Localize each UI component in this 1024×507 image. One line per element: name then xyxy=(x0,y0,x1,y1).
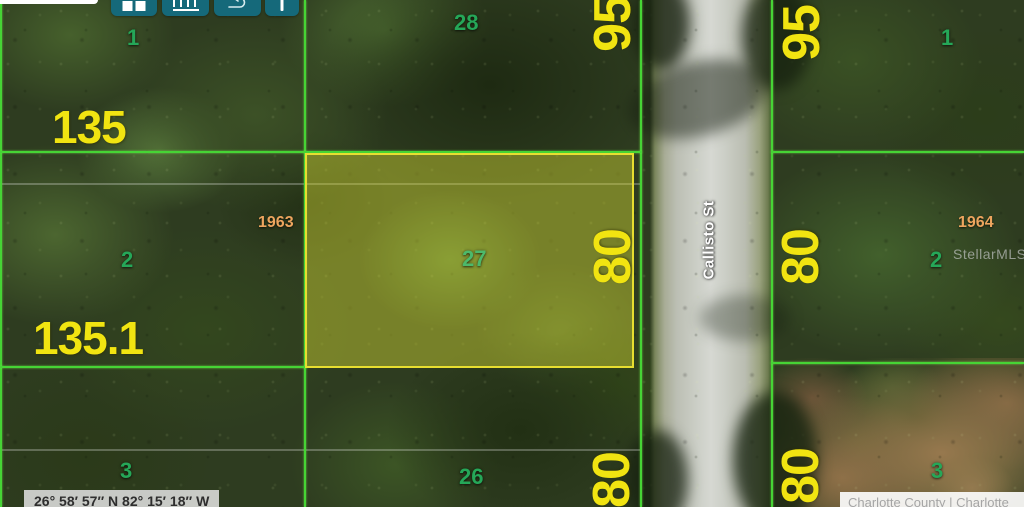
lot-number: 3 xyxy=(931,460,943,482)
faint-section-line xyxy=(0,449,641,451)
lot-dimension: 135.1 xyxy=(33,315,143,361)
parcel-line-west xyxy=(0,0,2,507)
map-attribution: Charlotte County | Charlotte xyxy=(840,492,1024,507)
lot-number: 26 xyxy=(459,466,483,488)
stellar-mls-watermark: StellarMLS xyxy=(953,246,1024,262)
measure-button[interactable] xyxy=(162,0,209,16)
parcel-line-row2-right xyxy=(771,362,1024,364)
parcel-id: 1964 xyxy=(958,215,994,231)
street-label: Callisto St xyxy=(701,201,718,280)
lot-number: 1 xyxy=(127,27,139,49)
lot-dimension: 95 xyxy=(587,0,639,52)
lot-number: 1 xyxy=(941,27,953,49)
layers-button[interactable] xyxy=(111,0,157,16)
parcel-line-row2-left xyxy=(0,366,307,368)
marker-button[interactable] xyxy=(265,0,299,16)
tree-shadow xyxy=(700,295,790,341)
draw-arrow-icon xyxy=(226,0,250,14)
lot-dimension: 80 xyxy=(586,452,638,507)
gps-coordinates: 26° 58′ 57″ N 82° 15′ 18″ W xyxy=(24,490,219,507)
lot-dimension: 80 xyxy=(775,229,827,285)
grid-icon xyxy=(123,0,146,11)
parcel-line-row1-right xyxy=(771,151,1024,153)
ruler-icon xyxy=(173,0,199,11)
lot-number: 2 xyxy=(930,249,942,271)
parcel-id: 1963 xyxy=(258,215,294,231)
lot-number: 2 xyxy=(121,249,133,271)
lot-number: 28 xyxy=(454,12,478,34)
map-viewer: 1 2 3 28 27 26 1 2 3 135 135.1 95 80 80 … xyxy=(0,0,1024,507)
lot-dimension: 135 xyxy=(52,104,126,150)
lot-dimension: 80 xyxy=(587,229,639,285)
lot-number-highlighted: 27 xyxy=(462,248,486,270)
search-box-edge[interactable] xyxy=(0,0,98,4)
marker-line-icon xyxy=(281,0,284,11)
lot-dimension: 95 xyxy=(776,5,828,61)
lot-dimension: 80 xyxy=(775,448,827,504)
lot-number: 3 xyxy=(120,460,132,482)
draw-button[interactable] xyxy=(214,0,261,16)
